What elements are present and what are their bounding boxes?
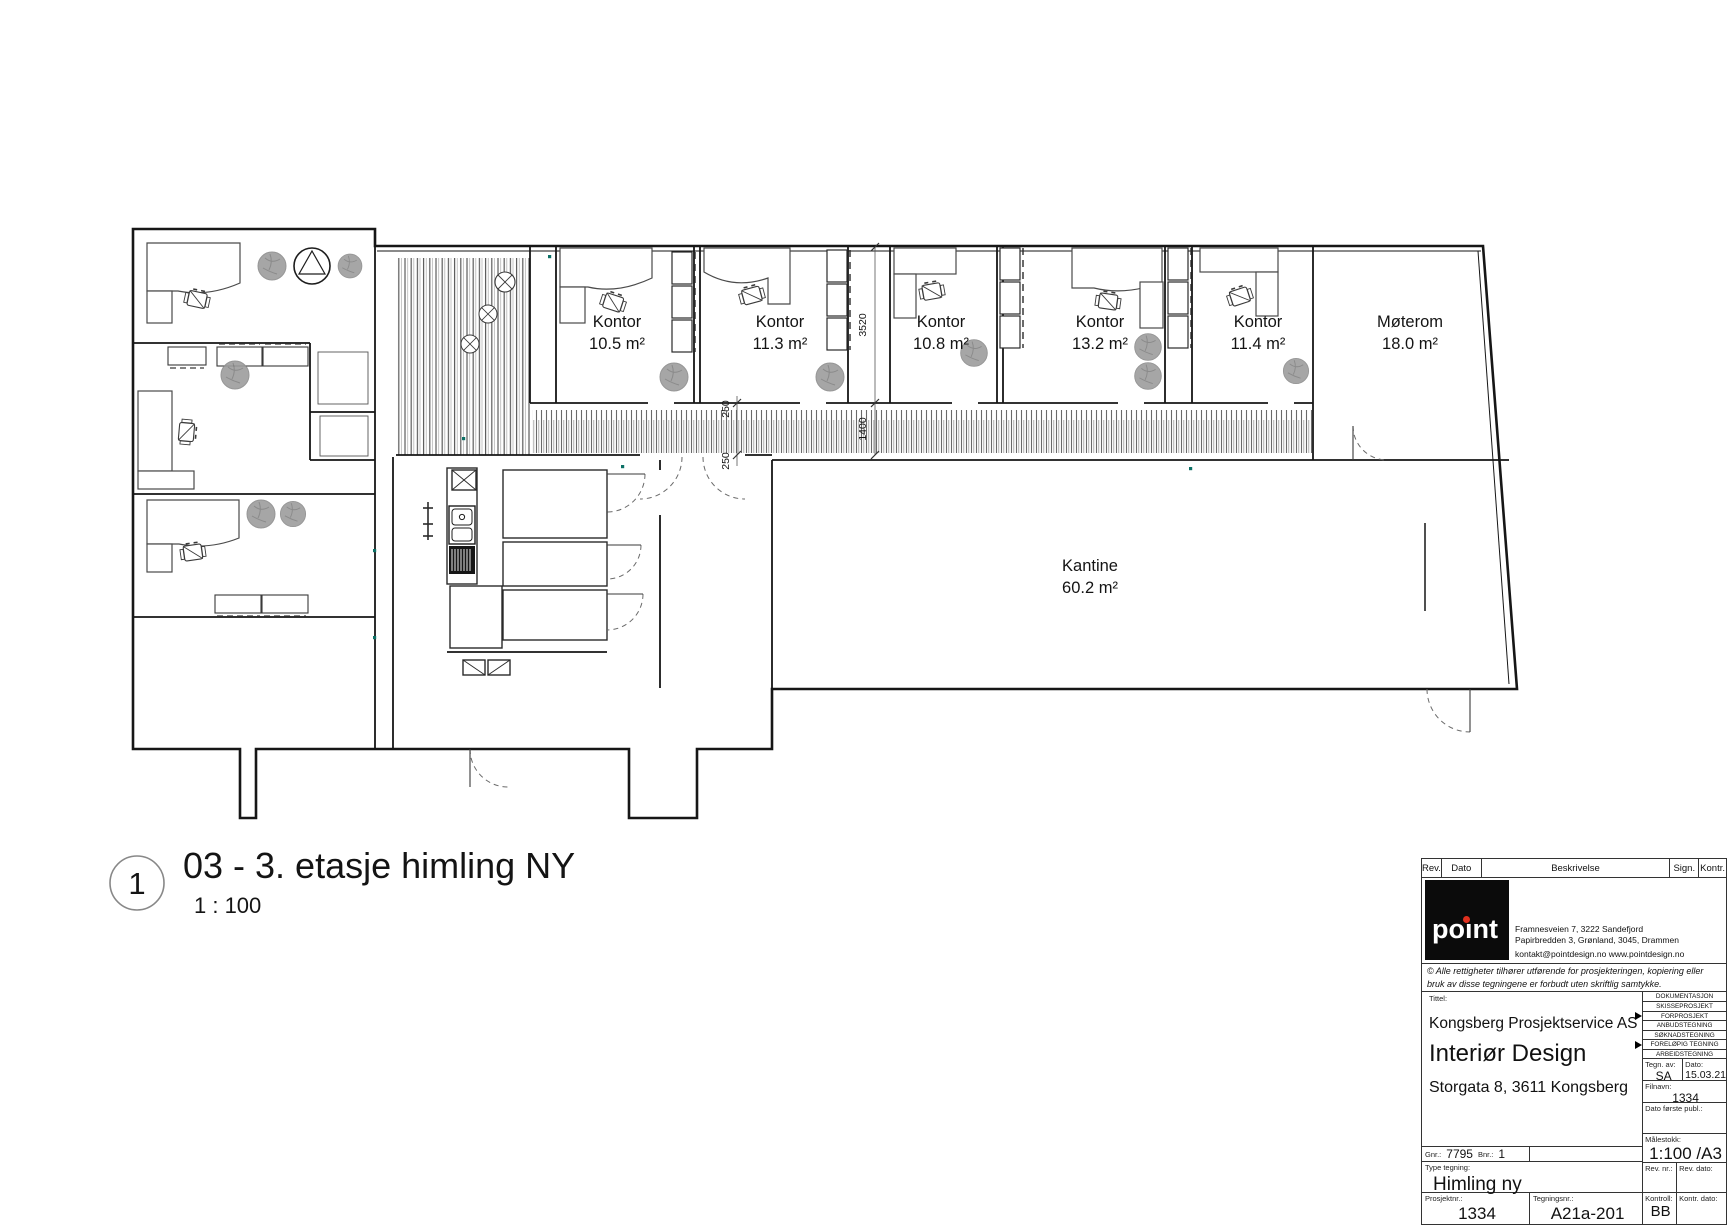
- prosjektnr-label: Prosjektnr.:: [1425, 1194, 1529, 1203]
- room-area-kontor-4: 13.2 m²: [1072, 335, 1128, 353]
- gnr-value: 7795: [1446, 1147, 1473, 1161]
- dato-value: 15.03.21: [1685, 1069, 1726, 1081]
- prosjektnr-value: 1334: [1425, 1204, 1529, 1224]
- kontr-dato-cell: Kontr. dato:: [1677, 1193, 1726, 1225]
- filnavn-label: Filnavn:: [1645, 1082, 1726, 1091]
- corridor-ceiling-slats: [532, 410, 1313, 453]
- room-labels: Kontor 10.5 m² Kontor 11.3 m² Kontor 10.…: [589, 313, 1443, 597]
- rev-header-cell: Rev.: [1422, 859, 1442, 877]
- room-area-kontor-1: 10.5 m²: [589, 335, 645, 353]
- tittel-cell: Tittel: Kongsberg Prosjektservice AS Int…: [1422, 992, 1642, 1147]
- company-address: Framnesveien 7, 3222 Sandefjord Papirbre…: [1515, 924, 1679, 947]
- view-title: 03 - 3. etasje himling NY: [183, 845, 575, 886]
- title-block: Rev. Dato Beskrivelse Sign. Kontr. poınt…: [1421, 858, 1727, 1225]
- tegningsnr-value: A21a-201: [1533, 1204, 1642, 1224]
- prosjektnr-cell: Prosjektnr.: 1334: [1422, 1193, 1530, 1225]
- door-arcs: [470, 426, 1470, 787]
- logo-row: poınt Framnesveien 7, 3222 Sandefjord Pa…: [1422, 878, 1726, 964]
- dato-label: Dato:: [1685, 1060, 1726, 1069]
- address-line-1: Framnesveien 7, 3222 Sandefjord: [1515, 924, 1679, 935]
- interior-walls: [133, 246, 1509, 749]
- rev-dato-cell: Rev. dato:: [1677, 1163, 1726, 1193]
- dok-item-anbudstegning: ANBUDSTEGNING: [1643, 1021, 1726, 1031]
- project-name: Interiør Design: [1429, 1040, 1638, 1068]
- tegningsnr-cell: Tegningsnr.: A21a-201: [1530, 1193, 1642, 1225]
- gnr-row: Gnr.: 7795 Bnr.: 1: [1422, 1147, 1642, 1162]
- room-label-kontor-3: Kontor: [917, 313, 966, 331]
- dokumentasjon-header: DOKUMENTASJON: [1643, 992, 1726, 1002]
- copyright-note: © Alle rettigheter tilhører utførende fo…: [1422, 964, 1726, 992]
- beskrivelse-header-cell: Beskrivelse: [1482, 859, 1671, 877]
- gnr-empty-cell: [1530, 1147, 1642, 1161]
- marker-arrow-icon: [1635, 1012, 1642, 1020]
- gnr-label: Gnr.:: [1425, 1150, 1441, 1159]
- kontroll-value: BB: [1645, 1203, 1676, 1220]
- dok-item-skisseprosjekt: SKISSEPROSJEKT: [1643, 1002, 1726, 1012]
- malestokk-cell: Målestokk: 1:100 /A3: [1643, 1134, 1726, 1163]
- round-table: [294, 248, 330, 284]
- room-label-kontor-1: Kontor: [593, 313, 642, 331]
- malestokk-label: Målestokk:: [1645, 1135, 1726, 1144]
- type-tegning-label: Type tegning:: [1425, 1163, 1642, 1172]
- client-name: Kongsberg Prosjektservice AS: [1429, 1015, 1638, 1033]
- room-area-kantine: 60.2 m²: [1062, 579, 1118, 597]
- dok-item-arbeidstegning: ARBEIDSTEGNING: [1643, 1050, 1726, 1060]
- tittel-label: Tittel:: [1429, 994, 1638, 1003]
- dok-item-soknadstegning: SØKNADSTEGNING: [1643, 1031, 1726, 1041]
- kontroll-label: Kontroll:: [1645, 1194, 1676, 1203]
- dok-item-forprosjekt: FORPROSJEKT: [1643, 1012, 1726, 1022]
- outer-walls: [133, 229, 1517, 818]
- room-label-moterom: Møterom: [1377, 313, 1443, 331]
- view-number: 1: [128, 866, 145, 901]
- point-logo: poınt: [1425, 880, 1509, 960]
- tegn-av-label: Tegn. av:: [1645, 1060, 1682, 1069]
- revision-header: Rev. Dato Beskrivelse Sign. Kontr.: [1422, 859, 1726, 878]
- dato-publ-label: Dato første publ.:: [1645, 1104, 1726, 1113]
- kontr-header-cell: Kontr.: [1699, 859, 1726, 877]
- room-label-kontor-5: Kontor: [1234, 313, 1283, 331]
- door-leaves: [470, 426, 1470, 787]
- room-area-kontor-5: 11.4 m²: [1231, 335, 1286, 353]
- dato-publ-cell: Dato første publ.:: [1643, 1103, 1726, 1134]
- room-label-kantine: Kantine: [1062, 557, 1118, 575]
- malestokk-value: 1:100 /A3: [1645, 1144, 1726, 1164]
- room-label-kontor-2: Kontor: [756, 313, 805, 331]
- company-contact: kontakt@pointdesign.no www.pointdesign.n…: [1515, 949, 1684, 959]
- dato-cell: Dato: 15.03.21: [1683, 1059, 1726, 1080]
- sink: [449, 506, 475, 544]
- dato-header-cell: Dato: [1442, 859, 1482, 877]
- dishwasher: [449, 546, 475, 574]
- room-area-kontor-2: 11.3 m²: [753, 335, 808, 353]
- dok-item-forelopig-tegning: FORELØPIG TEGNING: [1643, 1040, 1726, 1050]
- view-title-block: 1 03 - 3. etasje himling NY 1 : 100: [110, 845, 575, 918]
- dim-250-top: 250: [720, 400, 732, 418]
- bnr-value: 1: [1498, 1147, 1505, 1161]
- room-area-kontor-3: 10.8 m²: [913, 335, 969, 353]
- dim-3520: 3520: [857, 313, 869, 337]
- rev-nr-cell: Rev. nr.:: [1643, 1163, 1677, 1193]
- filnavn-cell: Filnavn: 1334: [1643, 1081, 1726, 1103]
- room-label-kontor-4: Kontor: [1076, 313, 1125, 331]
- type-tegning-cell: Type tegning: Himling ny: [1422, 1162, 1642, 1193]
- view-scale: 1 : 100: [194, 893, 261, 918]
- project-address: Storgata 8, 3611 Kongsberg: [1429, 1079, 1638, 1097]
- left-cells: [318, 352, 368, 456]
- tegningsnr-label: Tegningsnr.:: [1533, 1194, 1642, 1203]
- bnr-label: Bnr.:: [1478, 1150, 1493, 1159]
- address-line-2: Papirbredden 3, Grønland, 3045, Drammen: [1515, 935, 1679, 946]
- faucet-handles: [423, 502, 433, 540]
- tegn-av-cell: Tegn. av: SA: [1643, 1059, 1683, 1080]
- marker-arrow-icon: [1635, 1041, 1642, 1049]
- kontroll-cell: Kontroll: BB: [1643, 1193, 1677, 1225]
- room-area-moterom: 18.0 m²: [1382, 335, 1438, 353]
- sign-header-cell: Sign.: [1670, 859, 1699, 877]
- point-logo-red-dot-icon: [1463, 916, 1470, 923]
- dim-1400: 1400: [857, 417, 869, 441]
- dim-250-bottom: 250: [720, 452, 732, 470]
